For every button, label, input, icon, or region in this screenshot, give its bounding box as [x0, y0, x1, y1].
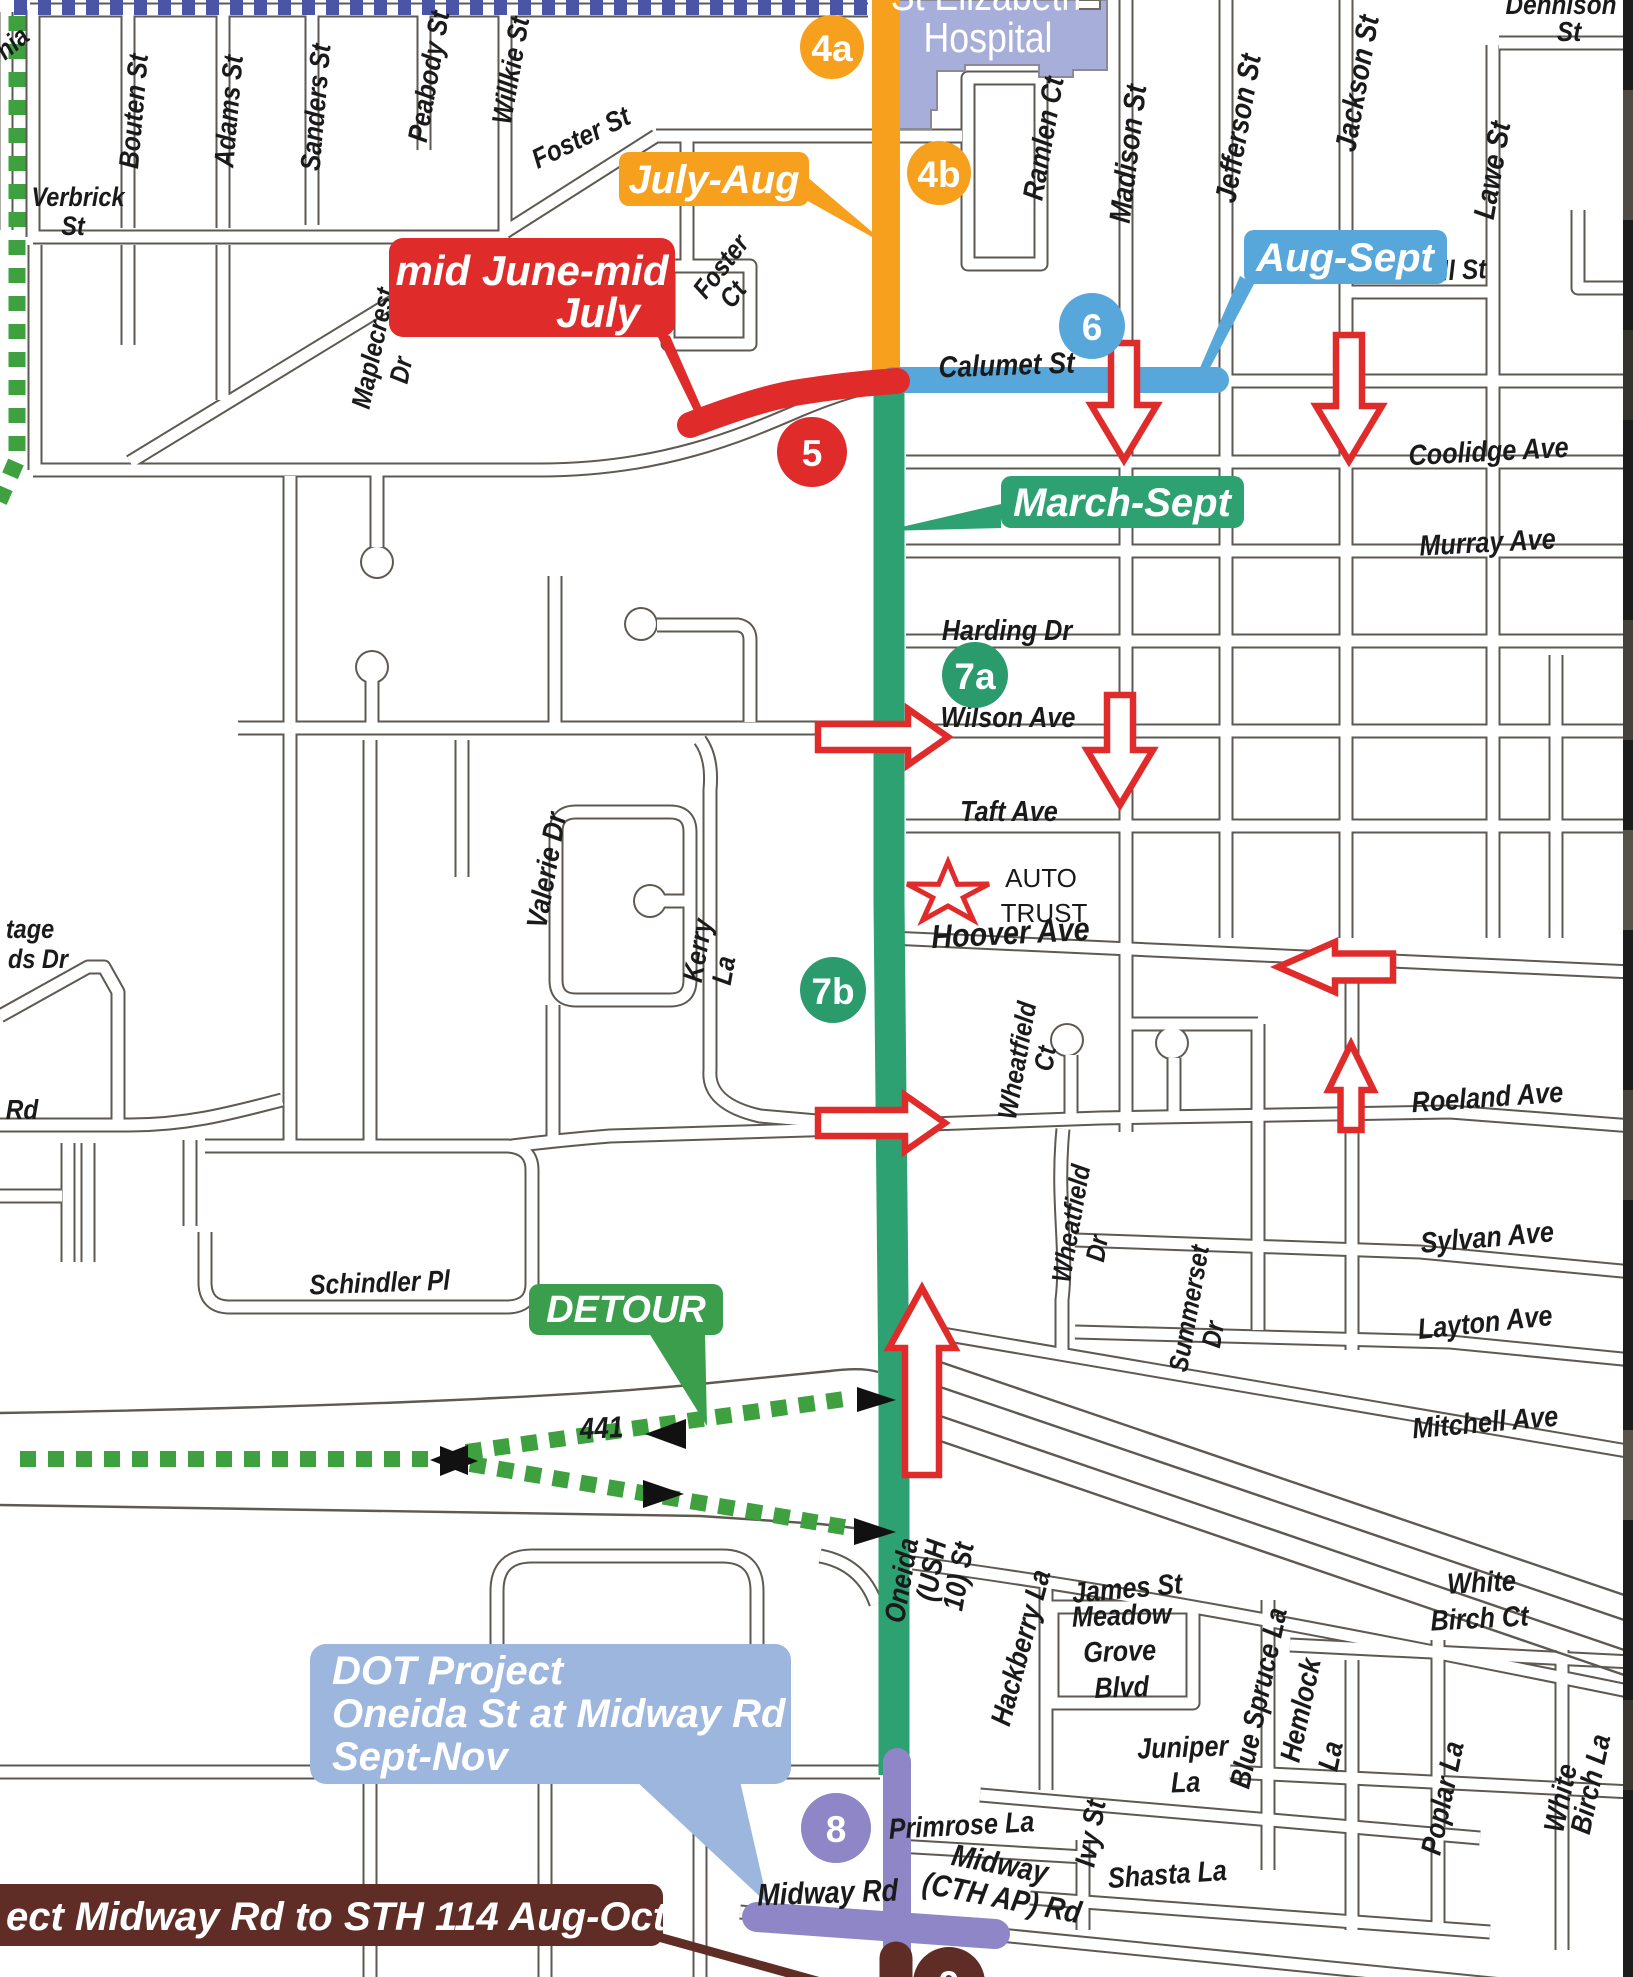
svg-text:St: St: [1557, 15, 1583, 47]
svg-text:mid June-mid: mid June-mid: [395, 247, 669, 294]
svg-text:Midway Rd: Midway Rd: [757, 1874, 900, 1913]
svg-text:tage: tage: [6, 915, 54, 945]
svg-text:Grove: Grove: [1083, 1633, 1157, 1669]
svg-text:St: St: [61, 212, 86, 242]
svg-text:Birch Ct: Birch Ct: [1430, 1599, 1531, 1637]
svg-text:Blvd: Blvd: [1094, 1669, 1151, 1704]
svg-text:5: 5: [802, 433, 823, 474]
svg-text:7a: 7a: [954, 656, 996, 697]
svg-text:July-Aug: July-Aug: [628, 158, 799, 202]
svg-text:Oneida St at Midway Rd: Oneida St at Midway Rd: [332, 1692, 787, 1736]
svg-text:8: 8: [826, 1809, 847, 1850]
svg-text:TRUST: TRUST: [1001, 898, 1088, 928]
svg-text:6: 6: [1082, 307, 1103, 348]
svg-text:March-Sept: March-Sept: [1013, 481, 1232, 525]
svg-text:4b: 4b: [917, 154, 960, 195]
svg-text:Aug-Sept: Aug-Sept: [1255, 236, 1435, 280]
svg-text:La: La: [705, 954, 741, 988]
svg-text:Rd: Rd: [6, 1093, 39, 1125]
svg-text:DETOUR: DETOUR: [546, 1289, 706, 1331]
svg-text:Hospital: Hospital: [924, 15, 1053, 61]
svg-text:Calumet St: Calumet St: [938, 346, 1077, 384]
svg-text:Taft Ave: Taft Ave: [960, 794, 1058, 827]
svg-text:Schindler Pl: Schindler Pl: [309, 1264, 451, 1301]
svg-text:ds Dr: ds Dr: [8, 945, 69, 975]
svg-text:9: 9: [939, 1964, 960, 1977]
svg-text:July: July: [556, 289, 643, 336]
svg-text:4a: 4a: [811, 28, 853, 69]
svg-text:Verbrick: Verbrick: [31, 183, 126, 213]
svg-text:Juniper: Juniper: [1137, 1729, 1231, 1765]
svg-text:ect Midway Rd to STH 114 Aug-O: ect Midway Rd to STH 114 Aug-Oct: [6, 1895, 668, 1939]
svg-text:Harding Dr: Harding Dr: [942, 613, 1074, 646]
svg-text:7b: 7b: [811, 971, 854, 1012]
svg-text:La: La: [1170, 1765, 1201, 1799]
svg-text:AUTO: AUTO: [1005, 863, 1077, 893]
svg-text:Wilson Ave: Wilson Ave: [941, 700, 1076, 733]
svg-text:441: 441: [578, 1410, 624, 1445]
svg-text:DOT Project: DOT Project: [332, 1649, 565, 1693]
svg-text:Sept-Nov: Sept-Nov: [332, 1735, 510, 1779]
svg-text:Meadow: Meadow: [1071, 1597, 1173, 1634]
svg-text:White: White: [1446, 1564, 1516, 1601]
